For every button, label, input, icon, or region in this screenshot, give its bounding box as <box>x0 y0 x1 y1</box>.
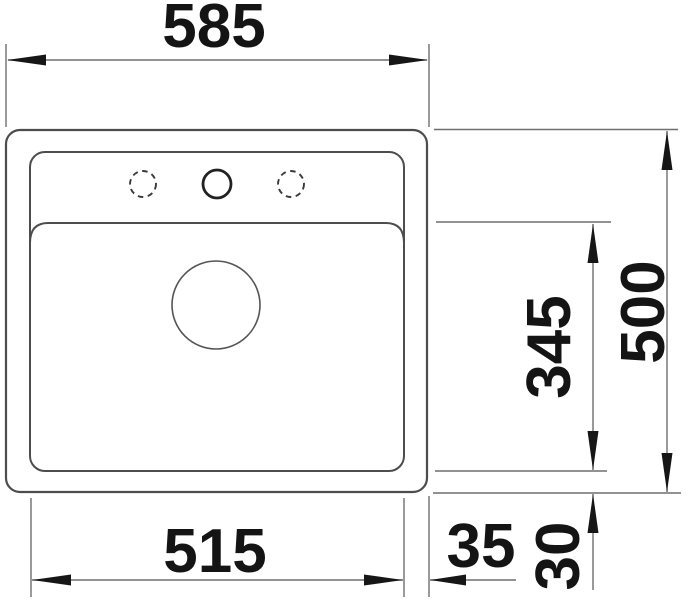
sink-outer-edge <box>6 130 427 492</box>
arrow-left-icon <box>7 55 46 66</box>
dim-label-585: 585 <box>162 0 265 61</box>
dim-side-rim: 35 <box>430 512 516 586</box>
arrow-up-icon <box>588 224 599 263</box>
tap-hole-center-icon <box>203 170 231 198</box>
arrow-right-icon <box>364 575 403 586</box>
dim-label-500: 500 <box>609 260 678 363</box>
tap-hole-right-icon <box>278 171 304 197</box>
dim-overall-depth: 500 <box>609 131 678 492</box>
dim-label-345: 345 <box>515 295 584 398</box>
drain-hole-icon <box>172 261 260 349</box>
dim-bowl-length: 345 <box>515 224 599 470</box>
sink-plan-view <box>6 130 427 492</box>
technical-drawing-canvas: 585 515 35 50 <box>0 0 686 599</box>
arrow-up-icon <box>662 131 673 170</box>
arrow-left-icon <box>32 575 71 586</box>
arrow-right-icon <box>389 55 428 66</box>
dim-overall-width: 585 <box>6 0 429 127</box>
dim-bottom-rim: 30 <box>524 494 599 590</box>
dim-label-30: 30 <box>524 522 593 591</box>
tap-hole-left-icon <box>130 171 156 197</box>
dim-label-515: 515 <box>163 517 266 586</box>
arrow-down-icon <box>588 431 599 470</box>
bowl-top-edge <box>30 223 404 243</box>
arrow-down-icon <box>662 453 673 492</box>
dim-cutout-width: 515 <box>31 496 429 597</box>
sink-inner-rim <box>30 152 404 471</box>
sink-technical-drawing: 585 515 35 50 <box>0 0 686 599</box>
dim-label-35: 35 <box>447 512 516 581</box>
